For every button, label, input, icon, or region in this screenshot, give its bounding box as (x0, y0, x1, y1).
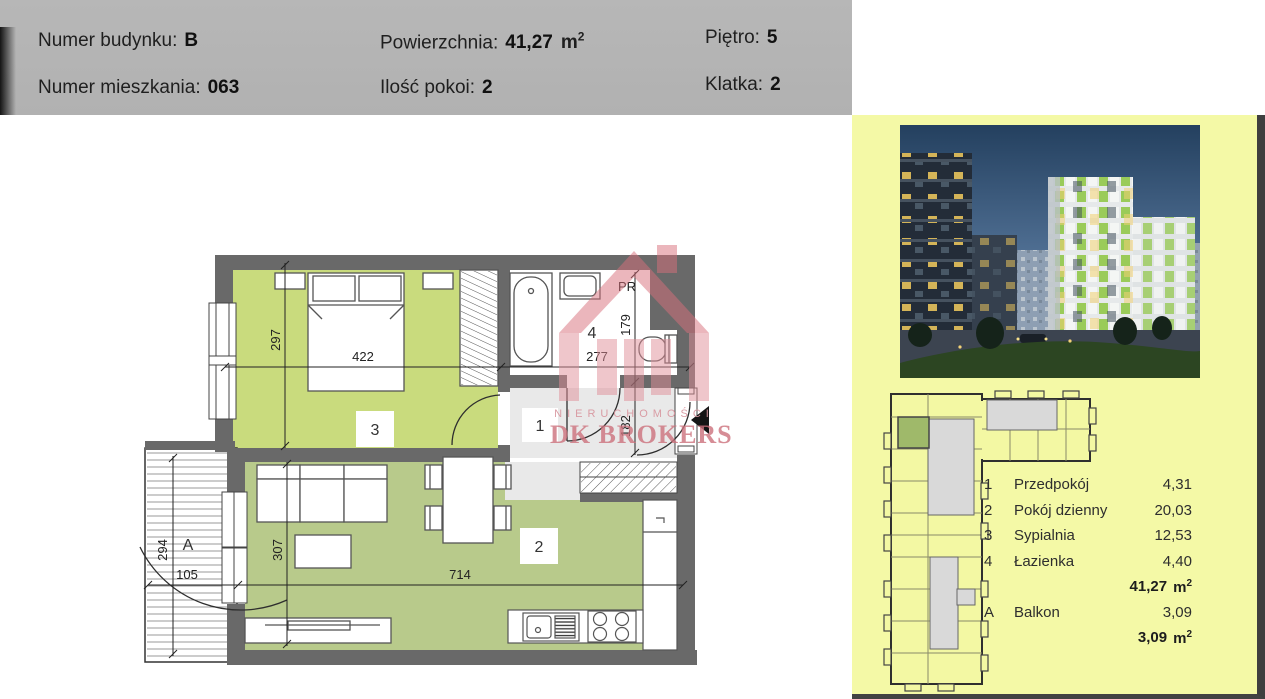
building-number-label: Numer budynku: (38, 30, 177, 51)
hall-passage-floor (505, 462, 580, 500)
legend-room-area: 20,03 (1154, 502, 1192, 519)
dining-table (443, 457, 493, 543)
dim-bath-height: 179 (618, 314, 633, 336)
wall-bottom (227, 650, 697, 665)
balcony-letter: A (183, 537, 194, 554)
stove (588, 611, 636, 642)
photo-car (1020, 334, 1046, 343)
area-unit: m2 (561, 32, 585, 53)
legend-room-name: Łazienka (1014, 553, 1163, 570)
legend-balcony-row: A Balkon 3,09 (984, 600, 1192, 626)
apartment-number-row: Numer mieszkania:063 (38, 77, 239, 99)
legend-room-number: 4 (984, 553, 1014, 570)
legend-room-name: Sypialnia (1014, 527, 1154, 544)
staircase-label: Klatka: (705, 74, 763, 95)
pillow-right (359, 276, 401, 301)
miniplan-core-lower (930, 557, 958, 649)
staircase-value: 2 (770, 74, 781, 95)
hall-number: 1 (536, 418, 545, 435)
legend-total-unit: m2 (1173, 578, 1192, 596)
dim-bedroom-height: 297 (268, 329, 283, 351)
floor-row: Piętro:5 (705, 27, 778, 49)
sofa (257, 465, 387, 522)
miniplan-core-wing (987, 400, 1057, 430)
legend-room-area: 12,53 (1154, 527, 1192, 544)
toilet (639, 335, 677, 363)
area-value: 41,27 (505, 32, 553, 53)
legend-balcony-total-row: 3,09 m2 (984, 625, 1192, 651)
legend-room-number: 3 (984, 527, 1014, 544)
photo-tree (976, 317, 1004, 349)
rooms-count-value: 2 (482, 77, 493, 98)
bath-number: 4 (588, 325, 597, 342)
area-row: Powierzchnia:41,27m2 (380, 30, 584, 54)
dim-hall-height: 182 (618, 415, 633, 437)
legend-balcony-total-value: 3,09 (1138, 629, 1167, 646)
bedroom-window (209, 303, 236, 419)
bedroom-number: 3 (371, 422, 380, 439)
legend-total-row: 41,27 m2 (984, 574, 1192, 600)
legend-row: 4 Łazienka 4,40 (984, 549, 1192, 575)
photo-tree (1113, 317, 1137, 345)
washer-label: PR (618, 279, 636, 294)
legend-room-name: Przedpokój (1014, 476, 1163, 493)
building-number-value: B (184, 30, 198, 51)
dim-bedroom-width: 422 (352, 349, 374, 364)
legend-row: 2 Pokój dzienny 20,03 (984, 498, 1192, 524)
legend-row: 1 Przedpokój 4,31 (984, 472, 1192, 498)
living-number: 2 (535, 539, 544, 556)
wall-bath-hall-left (510, 375, 567, 388)
wall-right-lower (677, 455, 695, 665)
legend-room-number: A (984, 604, 1014, 621)
dim-living-height: 307 (270, 539, 285, 561)
dim-bath-width: 277 (586, 349, 608, 364)
legend-room-area: 4,40 (1163, 553, 1192, 570)
pillow-left (313, 276, 355, 301)
legend-total-value: 41,27 (1130, 578, 1168, 595)
room-legend: 1 Przedpokój 4,31 2 Pokój dzienny 20,03 … (984, 472, 1192, 651)
wall-bedroom-hall-lower (498, 445, 510, 462)
miniplan-highlighted-unit (898, 417, 929, 448)
floor-value: 5 (767, 27, 778, 48)
bedroom-furniture (275, 270, 498, 391)
nightstand-right (423, 273, 453, 289)
nightstand-left (275, 273, 305, 289)
balcony-door-window (222, 492, 247, 603)
wall-shaft-mass (650, 255, 695, 330)
kitchen-sink (523, 613, 579, 641)
legend-room-number: 1 (984, 476, 1014, 493)
side-panel: 1 Przedpokój 4,31 2 Pokój dzienny 20,03 … (852, 115, 1265, 699)
miniplan-core (928, 419, 974, 515)
legend-balcony-total-unit: m2 (1173, 629, 1192, 647)
wall-bedroom-hall-upper (498, 255, 510, 392)
rooms-count-label: Ilość pokoi: (380, 77, 475, 98)
legend-room-area: 3,09 (1163, 604, 1192, 621)
hall-closet (580, 462, 677, 493)
building-number-row: Numer budynku:B (38, 30, 198, 52)
rooms-count-row: Ilość pokoi:2 (380, 77, 493, 99)
legend-row: 3 Sypialnia 12,53 (984, 523, 1192, 549)
apartment-number-value: 063 (208, 77, 240, 98)
floor-label: Piętro: (705, 27, 760, 48)
fridge-column (643, 500, 677, 650)
legend-room-name: Pokój dzienny (1014, 502, 1154, 519)
area-label: Powierzchnia: (380, 32, 498, 53)
header-bar: Numer budynku:B Numer mieszkania:063 Pow… (0, 0, 852, 115)
legend-room-area: 4,31 (1163, 476, 1192, 493)
legend-room-name: Balkon (1014, 604, 1163, 621)
photo-tree (1152, 316, 1172, 340)
dim-balcony-width: 105 (176, 567, 198, 582)
coffee-table (295, 535, 351, 568)
wall-left-lower-a (227, 448, 245, 492)
building-photo (900, 125, 1200, 378)
legend-room-number: 2 (984, 502, 1014, 519)
listing-page: Numer budynku:B Numer mieszkania:063 Pow… (0, 0, 1265, 699)
dim-balcony-height: 294 (155, 539, 170, 561)
dim-living-width: 714 (449, 567, 471, 582)
apartment-number-label: Numer mieszkania: (38, 77, 201, 98)
tv-stand (245, 618, 391, 643)
floorplan-drawing: PR (130, 230, 710, 699)
header-dark-edge (0, 27, 16, 115)
staircase-row: Klatka:2 (705, 74, 781, 96)
photo-tree (908, 323, 932, 347)
